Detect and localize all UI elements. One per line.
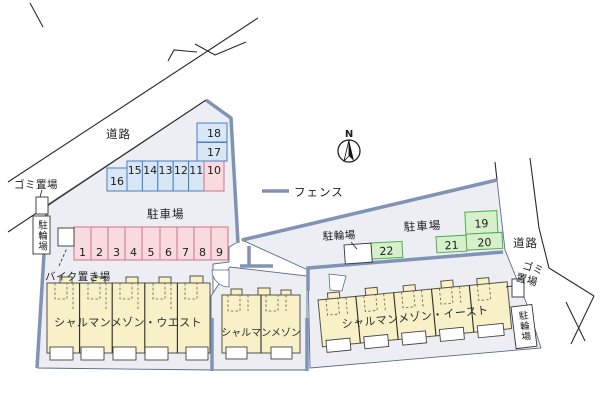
parking-space-10-number: 10 bbox=[207, 164, 221, 177]
building-west-name: シャルマンメゾン・ウエスト bbox=[54, 316, 202, 329]
parking-space-15-number: 15 bbox=[128, 164, 142, 177]
parking-space-20-number: 20 bbox=[477, 236, 492, 250]
building-west-entry bbox=[50, 347, 73, 360]
building-center: シャルマンメゾン bbox=[221, 288, 301, 359]
parking-space-4-number: 4 bbox=[130, 246, 137, 259]
parking-space-18-number: 18 bbox=[207, 127, 221, 140]
compass-north-label: N bbox=[345, 129, 353, 140]
fence-legend-label: フェンス bbox=[294, 185, 344, 199]
parking-space-22: 22 bbox=[371, 241, 403, 259]
legend-fence: フェンス bbox=[262, 185, 344, 199]
parking-space-2-number: 2 bbox=[96, 246, 103, 259]
road-fragment-top-b bbox=[195, 42, 246, 55]
building-east-entry bbox=[326, 338, 351, 352]
garbage-label-left: ゴミ置場 bbox=[14, 178, 58, 191]
compass-needle-dark bbox=[349, 140, 354, 161]
building-center-entry bbox=[271, 347, 292, 359]
garbage-left-pointer bbox=[40, 190, 42, 197]
road-fragment-top-a bbox=[168, 50, 197, 61]
building-west-entry bbox=[81, 347, 104, 360]
bike-storage-label: バイク置き場 bbox=[45, 270, 111, 283]
parking-label-east: 駐車場 bbox=[403, 218, 441, 234]
parking-space-9-number: 9 bbox=[216, 246, 223, 259]
parking-space-13-number: 13 bbox=[159, 164, 173, 177]
parking-space-1-number: 1 bbox=[79, 246, 86, 259]
building-west-entry bbox=[113, 347, 136, 360]
site-plan: 1 2 3 4 5 6 7 8 9 16 15 14 13 12 11 10 1… bbox=[0, 0, 600, 400]
parking-space-12-number: 12 bbox=[174, 164, 188, 177]
parking-space-3-number: 3 bbox=[113, 246, 120, 259]
parking-space-14-number: 14 bbox=[143, 164, 157, 177]
building-east-entry bbox=[402, 331, 427, 345]
parking-space-8-number: 8 bbox=[199, 246, 206, 259]
parking-space-19-number: 19 bbox=[474, 217, 489, 231]
building-west: シャルマンメゾン・ウエスト bbox=[47, 276, 210, 360]
parking-space-7-number: 7 bbox=[182, 246, 189, 259]
bicycle-label-left: 駐輪場 bbox=[36, 219, 48, 251]
building-east-entry bbox=[477, 323, 504, 337]
parking-space-22-number: 22 bbox=[379, 244, 394, 258]
bicycle-box-center bbox=[344, 243, 372, 264]
road-right-inner-stub bbox=[495, 162, 497, 180]
building-center-entry bbox=[226, 347, 247, 359]
parking-space-17-number: 17 bbox=[207, 146, 221, 159]
parking-space-11-number: 11 bbox=[189, 164, 203, 177]
gate-arc-center-parcel bbox=[212, 270, 229, 287]
compass-needle-light bbox=[344, 140, 349, 161]
parking-front-row: 1 2 3 4 5 6 7 8 9 bbox=[74, 227, 228, 260]
parking-space-6-number: 6 bbox=[165, 246, 172, 259]
road-label-right: 道路 bbox=[513, 236, 538, 250]
parking-space-5-number: 5 bbox=[148, 246, 155, 259]
building-west-entry bbox=[145, 347, 168, 360]
site-plan-canvas: 1 2 3 4 5 6 7 8 9 16 15 14 13 12 11 10 1… bbox=[0, 0, 600, 400]
building-east-entry bbox=[439, 327, 464, 341]
building-center-name: シャルマンメゾン bbox=[221, 327, 301, 339]
building-west-entry bbox=[186, 347, 208, 360]
bike-storage-box bbox=[58, 228, 74, 246]
road-fragment-topleft bbox=[30, 3, 43, 27]
compass: N bbox=[338, 129, 360, 162]
parking-space-16-number: 16 bbox=[110, 175, 124, 188]
building-east-entry bbox=[364, 334, 389, 348]
road-label-left: 道路 bbox=[106, 127, 131, 141]
parking-space-21-number: 21 bbox=[444, 239, 459, 253]
bicycle-label-center: 駐輪場 bbox=[322, 228, 356, 243]
parking-side-column: 18 17 bbox=[197, 123, 227, 161]
parking-label-west: 駐車場 bbox=[147, 207, 185, 221]
garbage-box-left bbox=[36, 197, 48, 214]
